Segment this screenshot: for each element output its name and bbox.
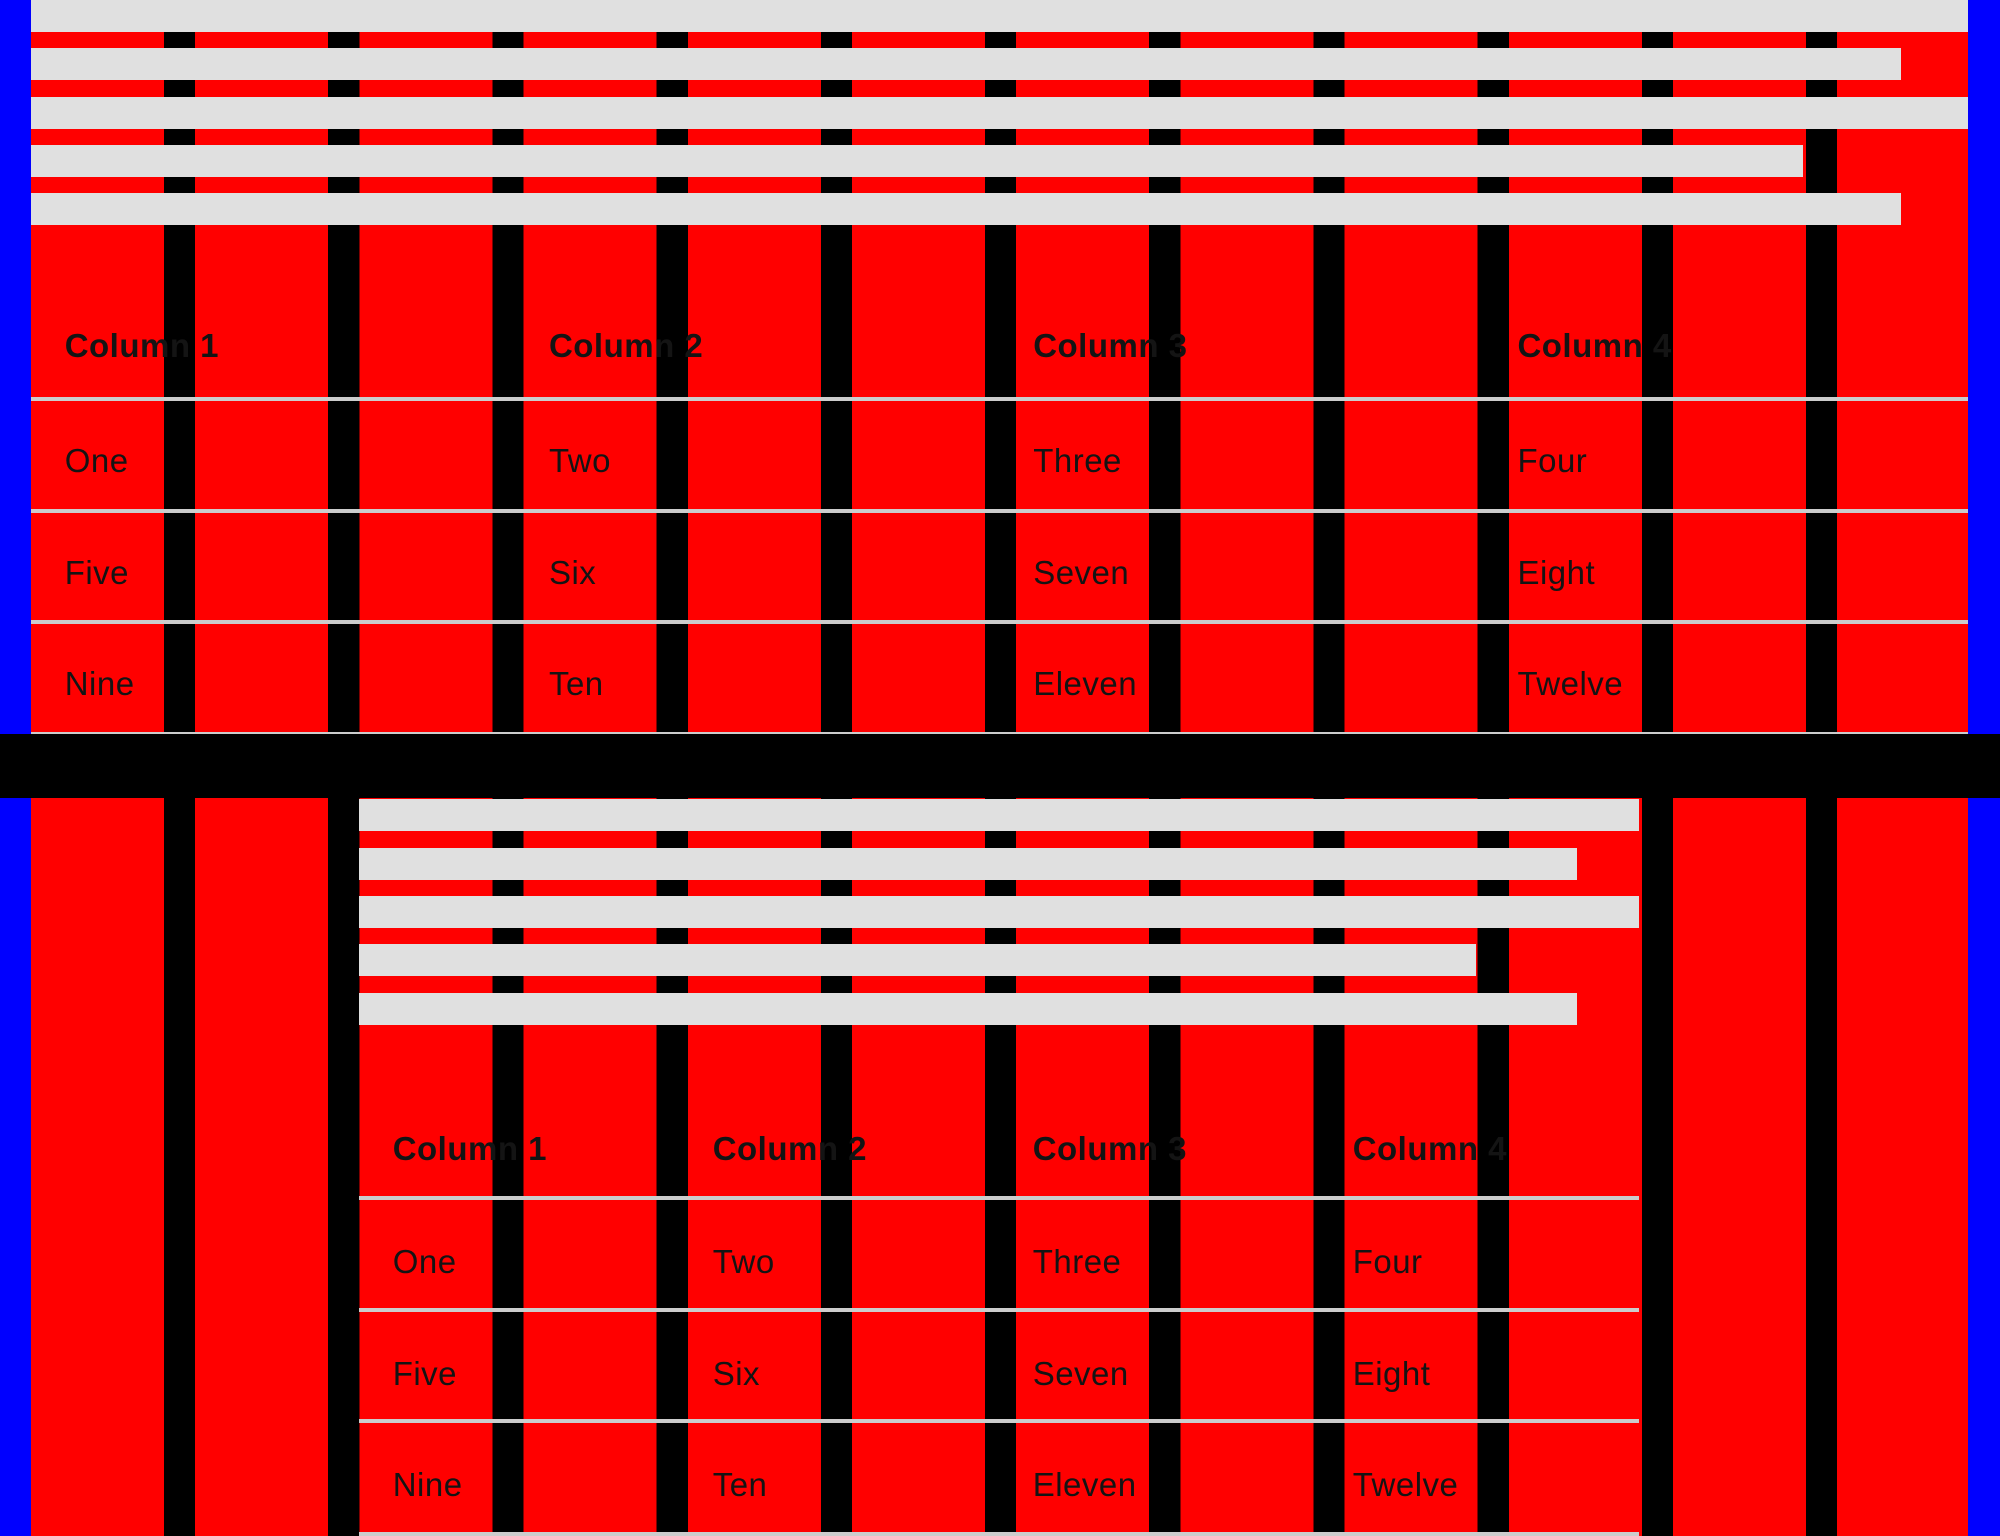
separator-band (0, 734, 2000, 798)
skeleton-line (359, 896, 1639, 928)
table-cell: Nine (65, 667, 135, 700)
test-page: { "colors": { "page_background": "#0000f… (0, 0, 2000, 1536)
table-cell: Eleven (1033, 1468, 1137, 1501)
table-cell: Five (65, 556, 129, 589)
column-header: Column 1 (65, 329, 219, 362)
table-cell: Six (549, 556, 596, 589)
table-cell: Three (1033, 1245, 1122, 1278)
table-cell: Nine (393, 1468, 463, 1501)
row-divider (31, 397, 1968, 401)
table-cell: One (393, 1245, 457, 1278)
skeleton-line (31, 0, 1968, 32)
skeleton-line (359, 848, 1576, 880)
skeleton-line (359, 944, 1476, 976)
table-cell: Two (713, 1245, 775, 1278)
table-cell: Twelve (1353, 1468, 1459, 1501)
row-divider (359, 1532, 1639, 1536)
row-divider (359, 1419, 1639, 1423)
table-cell: Six (713, 1357, 760, 1390)
table-cell: Eight (1353, 1357, 1431, 1390)
column-header: Column 1 (393, 1132, 547, 1165)
table-cell: One (65, 444, 129, 477)
column-header: Column 3 (1033, 1132, 1187, 1165)
column-header: Column 2 (549, 329, 703, 362)
skeleton-line (359, 993, 1576, 1025)
table-cell: Eleven (1033, 667, 1137, 700)
table-cell: Three (1033, 444, 1122, 477)
table-cell: Two (549, 444, 611, 477)
table-cell: Twelve (1517, 667, 1623, 700)
table-cell: Five (393, 1357, 457, 1390)
skeleton-line (31, 193, 1901, 225)
skeleton-line (31, 97, 1968, 129)
row-divider (359, 1308, 1639, 1312)
row-divider (359, 1196, 1639, 1200)
column-header: Column 3 (1033, 329, 1187, 362)
table-cell: Seven (1033, 1357, 1129, 1390)
skeleton-line (31, 48, 1901, 80)
table-cell: Seven (1033, 556, 1129, 589)
table-cell: Ten (713, 1468, 768, 1501)
table-cell: Four (1517, 444, 1587, 477)
row-divider (31, 620, 1968, 624)
table-cell: Eight (1517, 556, 1595, 589)
column-header: Column 2 (713, 1132, 867, 1165)
table-cell: Four (1353, 1245, 1423, 1278)
skeleton-line (359, 799, 1639, 831)
row-divider (31, 509, 1968, 513)
column-header: Column 4 (1517, 329, 1671, 362)
table-cell: Ten (549, 667, 604, 700)
skeleton-line (31, 145, 1803, 177)
column-header: Column 4 (1353, 1132, 1507, 1165)
